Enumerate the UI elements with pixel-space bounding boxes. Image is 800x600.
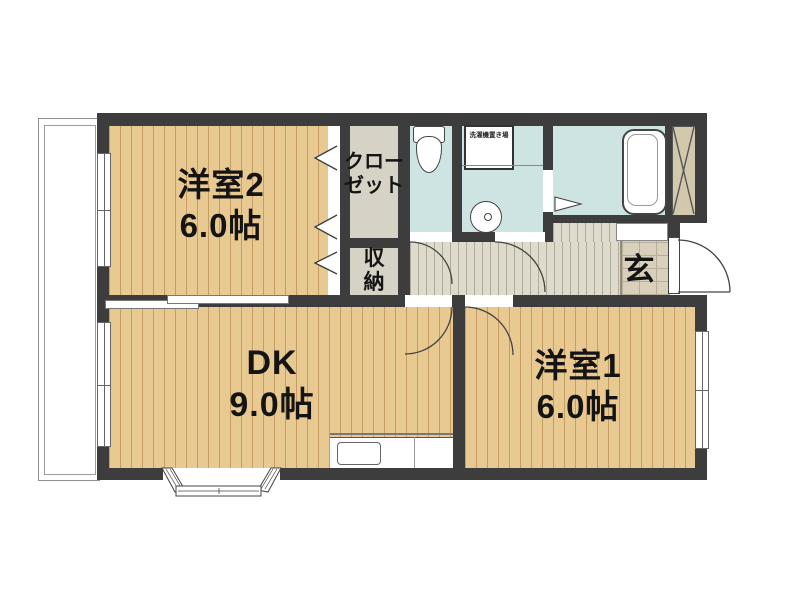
genkan-label-text: 玄 — [624, 252, 655, 287]
room-west1-area: 6.0帖 — [478, 386, 678, 427]
room-west2-name: 洋室2 — [121, 164, 321, 205]
closet-label-line2: ゼット — [344, 174, 404, 198]
room-west2-area: 6.0帖 — [121, 205, 321, 246]
dk-door-arc — [405, 307, 452, 354]
room-dk-label: DK 9.0帖 — [172, 342, 372, 426]
plan-symbols-overlay — [0, 0, 800, 600]
closet-label-line1: クロー — [344, 150, 404, 174]
floor-plan: 洗濯機置き場 洋室2 — [0, 0, 800, 600]
storage-label-line1: 収 — [350, 247, 398, 271]
room-dk-name: DK — [172, 342, 372, 384]
room-west1-label: 洋室1 6.0帖 — [478, 345, 678, 427]
washroom-door-arc — [495, 242, 545, 292]
room-dk-area: 9.0帖 — [172, 384, 372, 426]
closet-label: クロー ゼット — [344, 150, 404, 198]
room-west1-name: 洋室1 — [478, 345, 678, 386]
storage-folding-door-icon — [315, 252, 337, 274]
storage-label: 収 納 — [350, 247, 398, 295]
toilet-door-arc — [410, 242, 452, 284]
entrance-door-arc — [678, 240, 730, 292]
room-west2-label: 洋室2 6.0帖 — [121, 164, 321, 246]
bath-door-swing-icon — [555, 197, 581, 211]
genkan-label: 玄 — [614, 252, 664, 288]
storage-label-line2: 納 — [350, 271, 398, 295]
